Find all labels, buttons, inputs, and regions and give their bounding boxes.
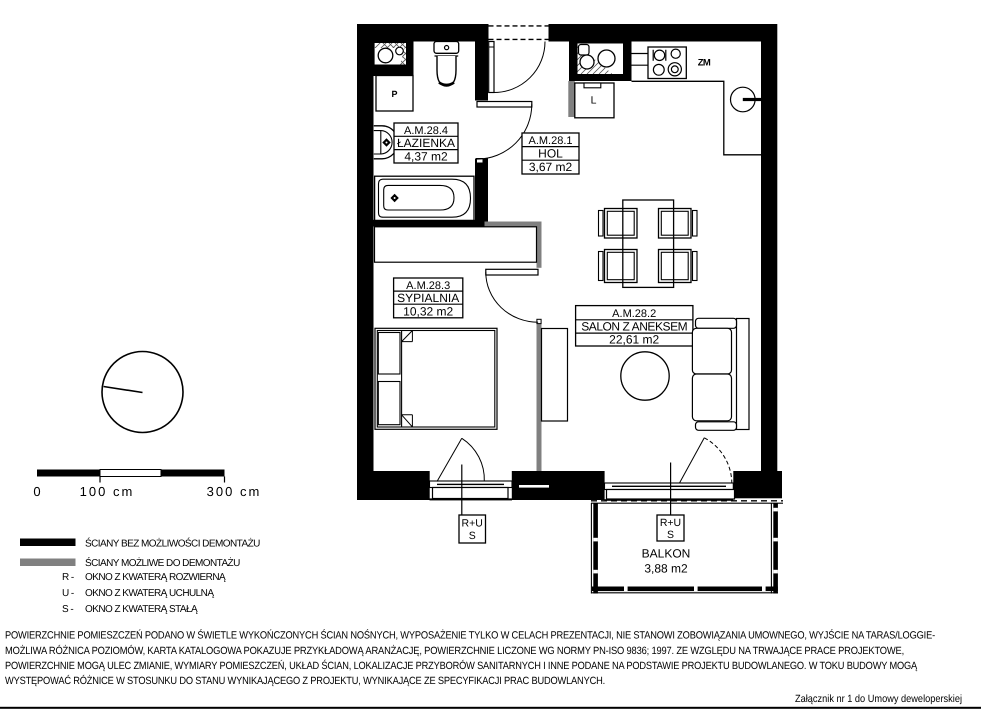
svg-text:100 cm: 100 cm	[80, 484, 135, 499]
svg-text:ŁAZIENKA: ŁAZIENKA	[397, 136, 455, 150]
svg-text:3,88 m2: 3,88 m2	[644, 561, 688, 575]
svg-text:S: S	[469, 530, 476, 542]
svg-text:300 cm: 300 cm	[207, 484, 262, 499]
svg-text:SYPIALNIA: SYPIALNIA	[397, 291, 459, 305]
svg-text:HOL: HOL	[538, 147, 563, 161]
svg-text:3,67 m2: 3,67 m2	[529, 160, 573, 174]
svg-text:ŚCIANY BEZ MOŻLIWOŚCI DEMONTAŻ: ŚCIANY BEZ MOŻLIWOŚCI DEMONTAŻU	[85, 538, 260, 550]
svg-text:A.M.28.4: A.M.28.4	[404, 125, 448, 137]
svg-text:ZM: ZM	[698, 58, 711, 69]
svg-text:OKNO Z KWATERĄ UCHULNĄ: OKNO Z KWATERĄ UCHULNĄ	[85, 588, 214, 599]
svg-text:MOŻLIWA RÓŻNICA POZIOMÓW, KART: MOŻLIWA RÓŻNICA POZIOMÓW, KARTA KATALOGO…	[5, 644, 904, 657]
svg-text:R+U: R+U	[462, 518, 483, 530]
svg-text:WYSTĘPOWAĆ RÓŻNICE W STOSUNKU: WYSTĘPOWAĆ RÓŻNICE W STOSUNKU DO STANU W…	[5, 674, 605, 687]
svg-text:R -: R -	[62, 572, 74, 583]
svg-text:4,37 m2: 4,37 m2	[404, 150, 448, 164]
svg-text:R+U: R+U	[660, 517, 681, 529]
svg-text:POWIERZCHNIE MOGĄ ULEC ZMIANIE: POWIERZCHNIE MOGĄ ULEC ZMIANIE, WYMIARY …	[5, 659, 918, 672]
svg-text:S: S	[667, 529, 674, 541]
svg-text:S -: S -	[62, 604, 73, 615]
svg-text:A.M.28.2: A.M.28.2	[612, 308, 656, 320]
svg-text:POWIERZCHNIE POMIESZCZEŃ PODAN: POWIERZCHNIE POMIESZCZEŃ PODANO W ŚWIETL…	[5, 629, 936, 642]
svg-text:SALON Z ANEKSEM: SALON Z ANEKSEM	[581, 319, 687, 333]
svg-text:A.M.28.3: A.M.28.3	[406, 280, 450, 292]
svg-text:Załącznik nr 1 do Umowy dewelo: Załącznik nr 1 do Umowy deweloperskiej	[795, 693, 962, 705]
svg-text:0: 0	[33, 484, 40, 499]
svg-text:A.M.28.1: A.M.28.1	[528, 135, 572, 147]
svg-text:ŚCIANY MOŻLIWE DO DEMONTAŻU: ŚCIANY MOŻLIWE DO DEMONTAŻU	[85, 557, 240, 569]
svg-text:22,61 m2: 22,61 m2	[609, 333, 659, 347]
svg-text:OKNO Z KWATERĄ STAŁĄ: OKNO Z KWATERĄ STAŁĄ	[85, 604, 198, 615]
svg-text:10,32 m2: 10,32 m2	[403, 304, 453, 318]
svg-text:OKNO Z KWATERĄ ROZWIERNĄ: OKNO Z KWATERĄ ROZWIERNĄ	[85, 572, 226, 583]
svg-text:U -: U -	[62, 588, 74, 599]
svg-text:BALKON: BALKON	[642, 547, 691, 561]
svg-text:P: P	[391, 89, 397, 99]
svg-text:L: L	[591, 95, 597, 107]
